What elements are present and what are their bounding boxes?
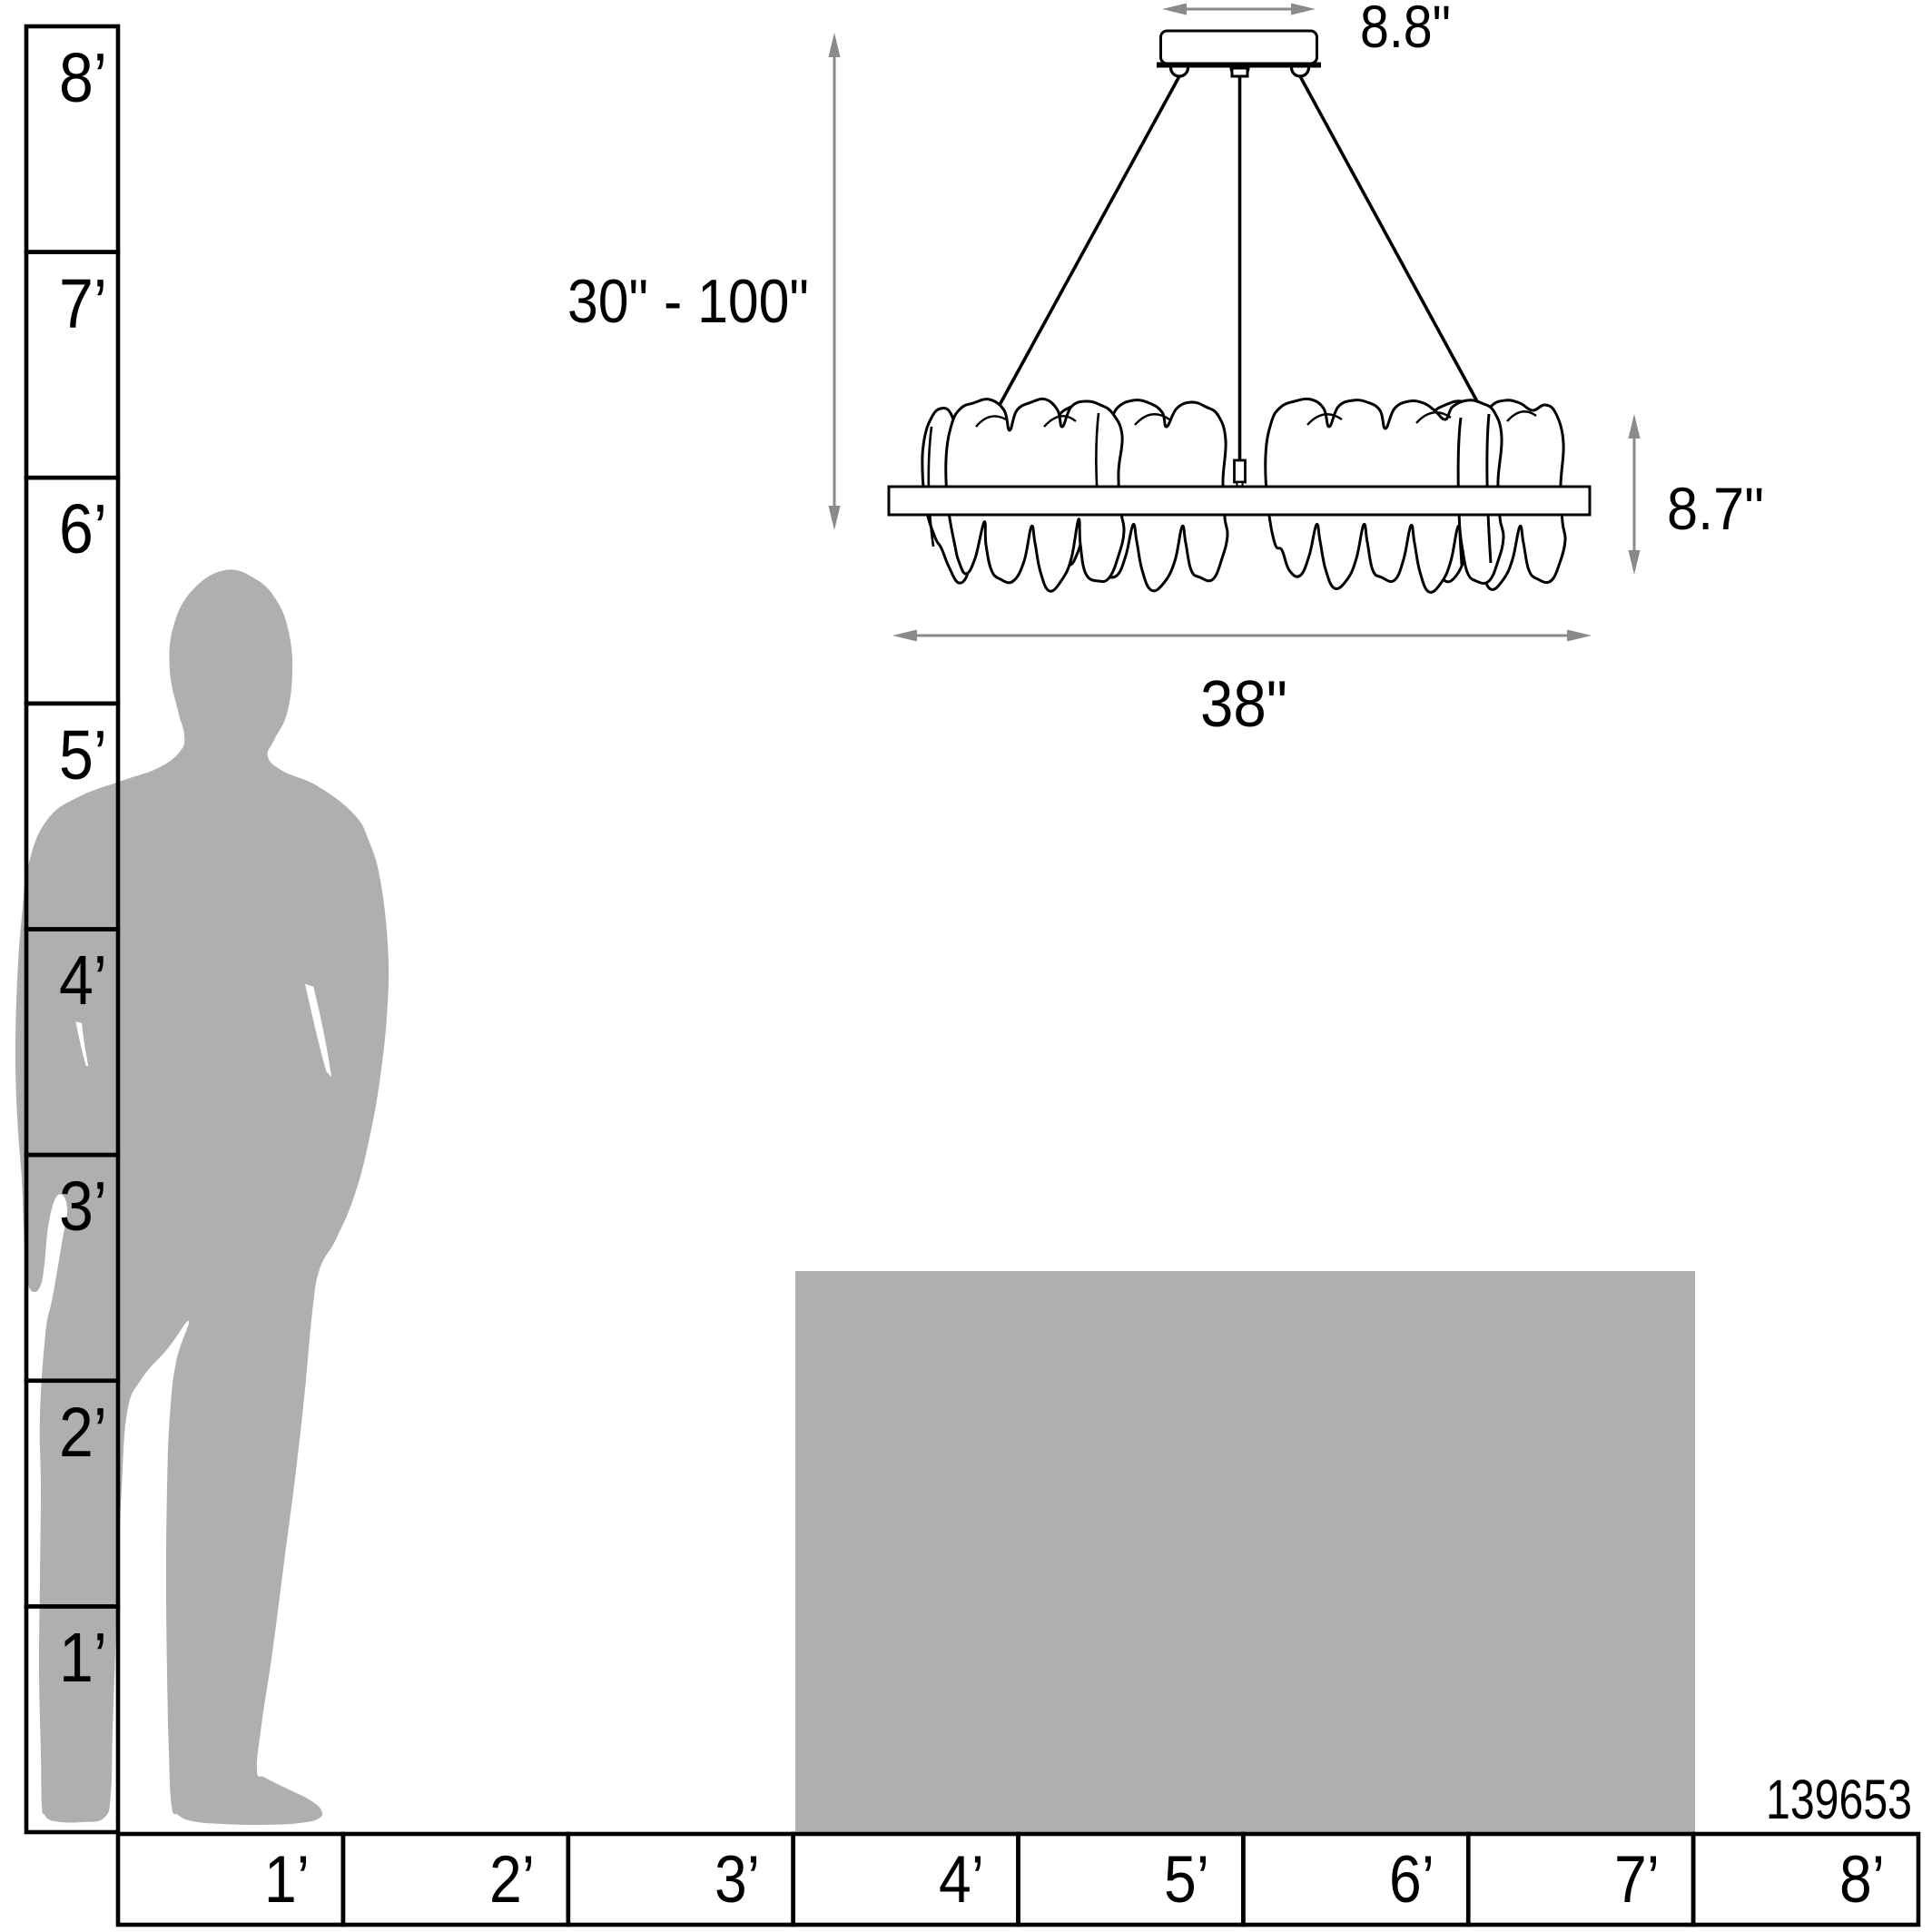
svg-text:4’: 4’ <box>59 941 107 1020</box>
svg-text:5’: 5’ <box>1164 1843 1209 1917</box>
svg-text:3’: 3’ <box>715 1843 760 1917</box>
svg-text:8.8": 8.8" <box>1360 0 1451 60</box>
svg-text:38": 38" <box>1200 668 1287 741</box>
svg-text:6’: 6’ <box>59 490 107 568</box>
svg-text:4’: 4’ <box>939 1843 984 1917</box>
svg-text:3’: 3’ <box>59 1168 107 1246</box>
svg-text:7’: 7’ <box>59 265 107 343</box>
svg-text:139653: 139653 <box>1766 1769 1912 1830</box>
svg-text:5’: 5’ <box>59 716 107 794</box>
svg-text:8’: 8’ <box>59 39 107 117</box>
svg-text:2’: 2’ <box>59 1394 107 1472</box>
svg-text:1’: 1’ <box>264 1843 310 1917</box>
svg-text:1’: 1’ <box>59 1619 107 1697</box>
svg-text:8’: 8’ <box>1839 1843 1885 1917</box>
svg-text:8.7": 8.7" <box>1667 475 1764 542</box>
svg-text:2’: 2’ <box>489 1843 535 1917</box>
svg-text:6’: 6’ <box>1389 1843 1434 1917</box>
svg-text:7’: 7’ <box>1614 1843 1660 1917</box>
svg-text:30" - 100": 30" - 100" <box>567 267 809 336</box>
